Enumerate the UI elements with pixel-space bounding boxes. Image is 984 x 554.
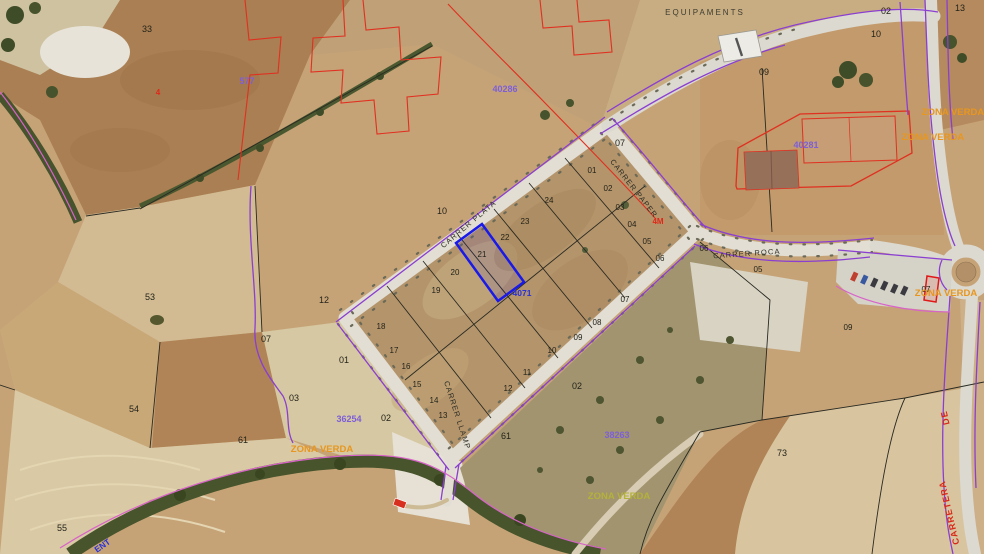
label-farm-09-ne: 09 — [759, 67, 769, 77]
label-lot-16: 16 — [402, 362, 411, 371]
label-zone-equipaments: EQUIPAMENTS — [665, 8, 745, 17]
label-farm-12: 12 — [319, 295, 329, 305]
label-farm-73: 73 — [777, 448, 787, 458]
label-farm-02-ne: 02 — [881, 6, 891, 16]
label-farm-54: 54 — [129, 404, 139, 414]
label-lot-12: 12 — [504, 384, 513, 393]
label-zona-verda-s: ZONA VERDA — [588, 491, 651, 502]
label-farm-03-sw: 03 — [289, 393, 299, 403]
label-lot-22: 22 — [501, 233, 510, 242]
label-farm-61-c: 61 — [501, 431, 511, 441]
label-lot-02: 02 — [604, 184, 613, 193]
map-canvas[interactable]: EQUIPAMENTS 33 577 4 40286 02 10 13 09 0… — [0, 0, 984, 554]
label-farm-07-w: 07 — [261, 334, 271, 344]
label-lot-09: 09 — [574, 333, 583, 342]
label-farm-02-sw: 02 — [381, 413, 391, 423]
label-ref-40281: 40281 — [793, 140, 818, 150]
dead-end-stub — [447, 458, 452, 502]
label-lot-01: 01 — [588, 166, 597, 175]
label-ref-40286: 40286 — [492, 84, 517, 94]
label-farm-33: 33 — [142, 24, 152, 34]
label-lot-15: 15 — [413, 380, 422, 389]
label-lot-24: 24 — [545, 196, 554, 205]
label-farm-07-n: 07 — [615, 138, 625, 148]
label-farm-13: 13 — [955, 3, 965, 13]
label-farm-10-ne: 10 — [871, 29, 881, 39]
label-zona-verda-sw: ZONA VERDA — [291, 444, 354, 455]
label-farm-55: 55 — [57, 523, 67, 533]
label-farm-53: 53 — [145, 292, 155, 302]
label-lot-20: 20 — [451, 268, 460, 277]
label-lot-11: 11 — [523, 368, 532, 377]
label-lot-03: 03 — [616, 203, 625, 212]
label-lot-06: 06 — [656, 254, 665, 263]
label-lot-14: 14 — [430, 396, 439, 405]
label-red-4: 4 — [156, 88, 161, 97]
label-lot-05: 05 — [643, 237, 652, 246]
label-lot-17: 17 — [390, 346, 399, 355]
label-dim-4m: 4M — [652, 217, 663, 226]
label-lot-05b: 05 — [754, 265, 763, 274]
label-ref-577: 577 — [239, 76, 254, 86]
white-structure — [718, 30, 762, 62]
label-lot-08: 08 — [593, 318, 602, 327]
label-zona-verda-ne: ZONA VERDA — [902, 132, 965, 143]
label-lot-19: 19 — [432, 286, 441, 295]
label-lot-21: 21 — [478, 250, 487, 259]
label-zona-verda-edge-top: ZONA VERDA — [922, 107, 984, 118]
label-farm-10-w: 10 — [437, 206, 447, 216]
label-lot-04: 04 — [628, 220, 637, 229]
label-lot-09-parking: 09 — [844, 323, 853, 332]
label-farm-61-w: 61 — [238, 435, 248, 445]
label-lot-23: 23 — [521, 217, 530, 226]
label-lot-06b: 06 — [700, 244, 709, 253]
label-farm-01-sw: 01 — [339, 355, 349, 365]
label-zona-verda-edge-mid: ZONA VERDA — [915, 288, 978, 299]
label-ref-4071: 4071 — [513, 288, 532, 298]
label-farm-02-e: 02 — [572, 381, 582, 391]
label-ref-36254: 36254 — [336, 414, 361, 424]
label-ref-38263: 38263 — [604, 430, 629, 440]
label-lot-10: 10 — [548, 346, 557, 355]
label-lot-18: 18 — [377, 322, 386, 331]
label-lot-07: 07 — [621, 295, 630, 304]
label-lot-13: 13 — [439, 411, 448, 420]
